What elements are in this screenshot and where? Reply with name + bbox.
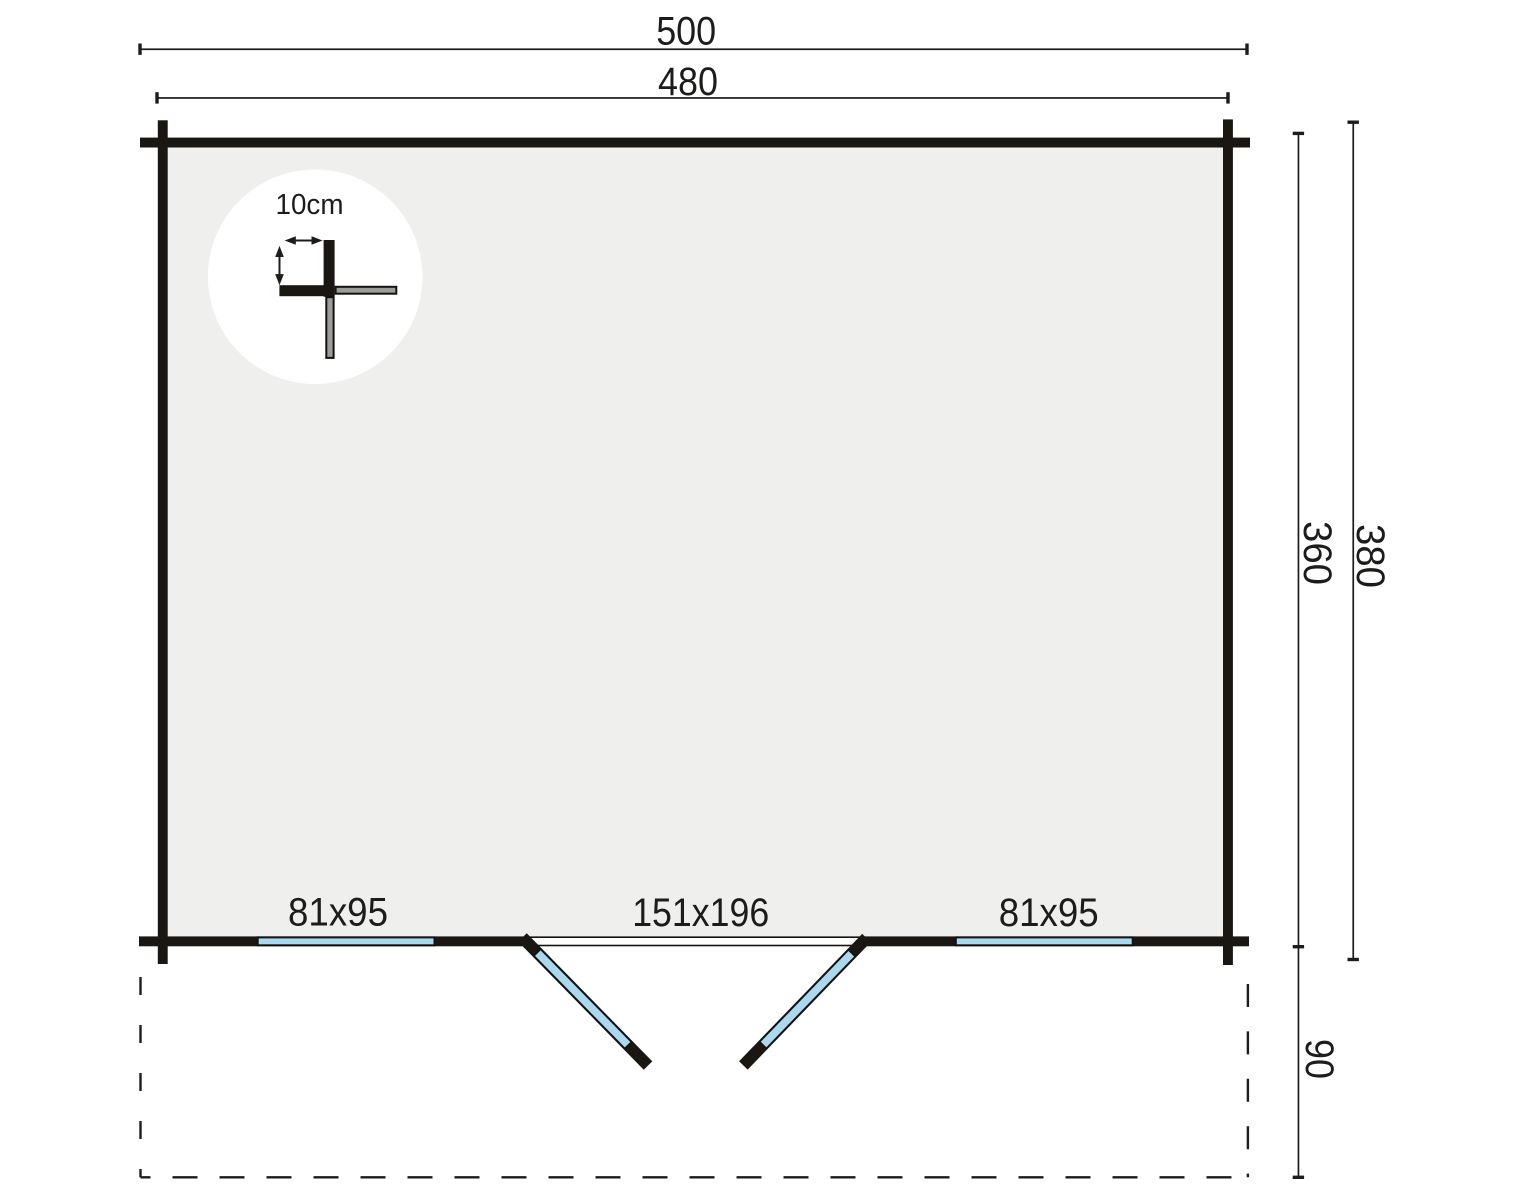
svg-text:480: 480: [658, 60, 718, 104]
svg-text:360: 360: [1295, 521, 1339, 585]
svg-text:500: 500: [656, 9, 716, 53]
svg-text:151x196: 151x196: [632, 891, 769, 935]
svg-text:380: 380: [1348, 524, 1392, 588]
svg-text:90: 90: [1297, 1039, 1341, 1079]
svg-text:10cm: 10cm: [276, 189, 344, 221]
svg-text:81x95: 81x95: [999, 891, 1099, 935]
svg-text:81x95: 81x95: [288, 891, 388, 935]
